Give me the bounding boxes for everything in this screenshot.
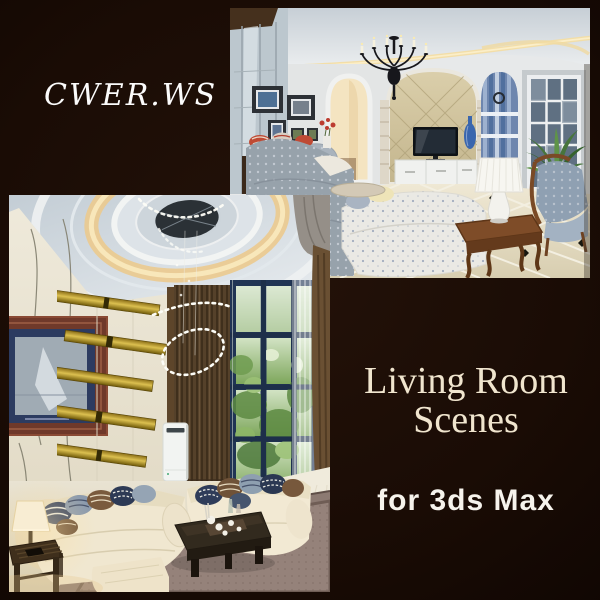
- right-edge-shadow: [584, 64, 590, 278]
- round-table: [331, 183, 385, 197]
- modern-living-room-photo: [9, 195, 330, 592]
- watermark-text: CWER.WS: [44, 78, 217, 113]
- promo-title-line1: Living Room: [330, 362, 600, 401]
- promo-title: Living Room Scenes: [330, 362, 600, 440]
- air-conditioner: [161, 423, 193, 486]
- promo-cover: CWER.WS: [0, 0, 600, 600]
- promo-subtitle: for 3ds Max: [330, 484, 600, 518]
- promo-title-line2: Scenes: [330, 401, 600, 440]
